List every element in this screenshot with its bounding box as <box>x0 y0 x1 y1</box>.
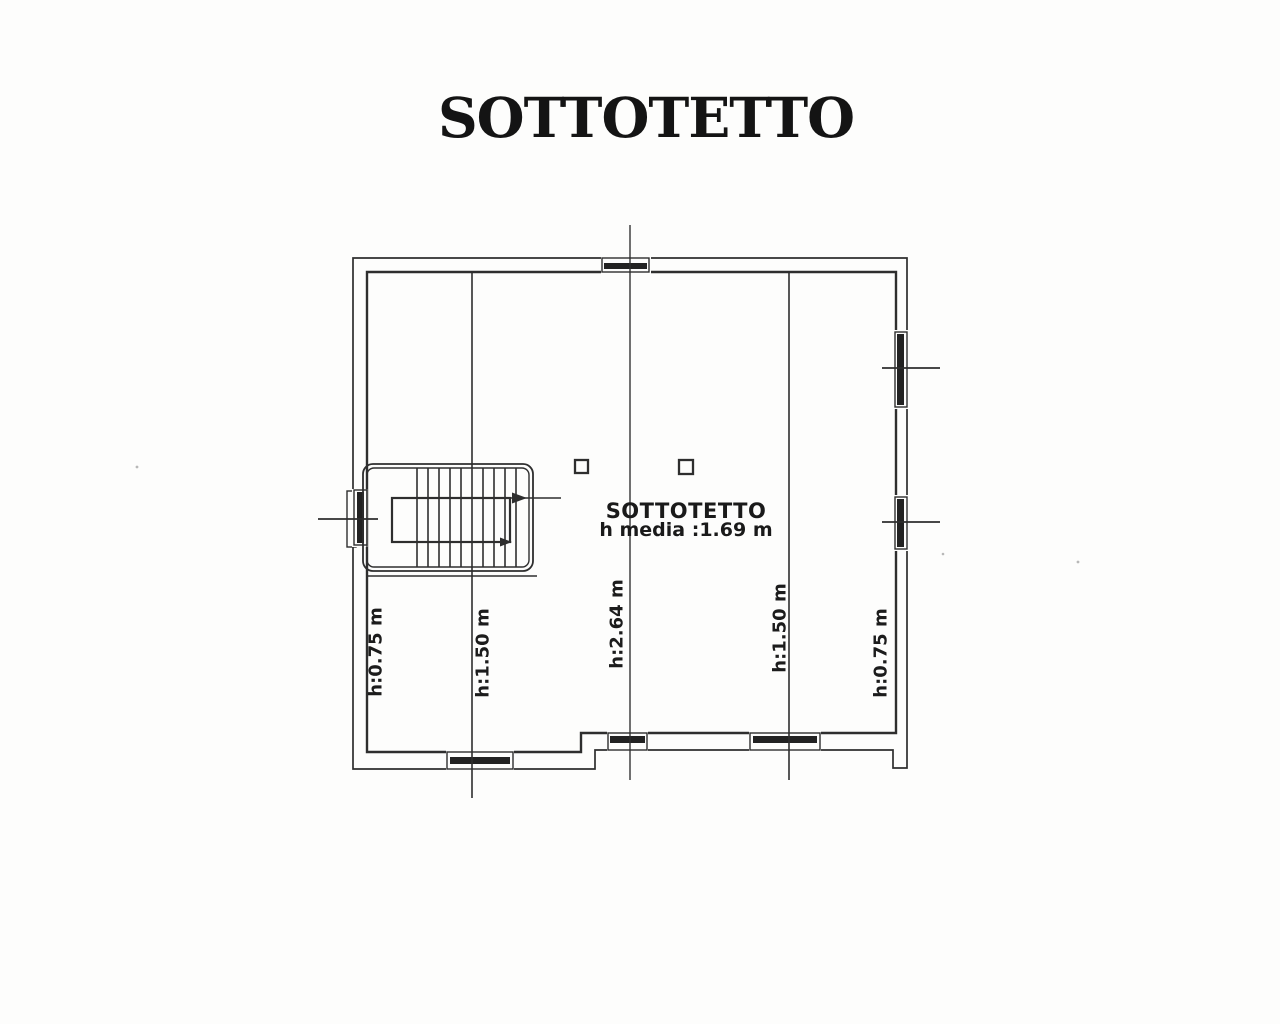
room-label: SOTTOTETTO h media :1.69 m <box>536 502 836 539</box>
window-bottom-right <box>749 731 821 752</box>
stair-treads <box>417 468 516 567</box>
pillar-right <box>679 460 693 474</box>
window-top <box>601 256 651 274</box>
height-label-right-mid: h:1.50 m <box>770 583 791 672</box>
pillar-left <box>575 460 588 473</box>
height-label-left-mid: h:1.50 m <box>473 608 494 697</box>
height-label-left-eaves: h:0.75 m <box>366 607 387 696</box>
scanned-floor-plan-page: SOTTOTETTO <box>0 0 1280 1024</box>
window-left <box>318 489 378 547</box>
height-label-right-eaves: h:0.75 m <box>871 608 892 697</box>
room-average-height: h media :1.69 m <box>536 521 836 539</box>
stair-well <box>392 498 510 542</box>
window-bottom-center <box>607 731 648 752</box>
window-bottom-left <box>446 750 514 771</box>
window-right-upper <box>882 330 940 409</box>
window-right-lower <box>882 495 940 551</box>
staircase <box>363 464 561 576</box>
height-label-ridge: h:2.64 m <box>607 579 628 668</box>
stair-outer-border <box>363 464 533 571</box>
